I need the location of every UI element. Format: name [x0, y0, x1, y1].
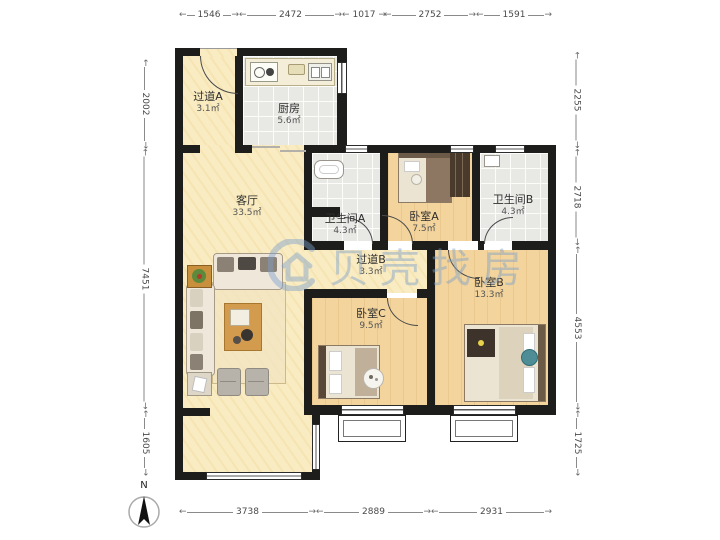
bed-b-cabinet — [467, 329, 495, 357]
wall — [175, 408, 210, 416]
room-label-kitchen: 厨房5.6㎡ — [277, 102, 300, 127]
bathtub-icon — [314, 160, 344, 179]
dimension-top-3: ←1017→ — [342, 8, 384, 22]
side-table-plant — [187, 265, 212, 288]
window-bed-a — [450, 145, 474, 153]
room-label-bed-c: 卧室C9.5㎡ — [356, 307, 386, 332]
bed-c-rug — [363, 368, 384, 389]
dimension-left-1: ←2002→ — [138, 59, 152, 149]
sliding-door-kitchen — [252, 146, 280, 148]
dimension-right-1: ←2255→ — [570, 52, 584, 149]
dimension-top-2: ←2472→ — [239, 8, 342, 22]
window-bath-a — [345, 145, 368, 153]
dimension-bottom-2: ←2889→ — [316, 505, 431, 519]
window-kitchen — [337, 62, 347, 94]
room-label-bed-b: 卧室B13.3㎡ — [474, 276, 504, 301]
wall — [472, 145, 480, 241]
room-label-hallway-a: 过道A3.1㎡ — [193, 90, 223, 115]
wall — [372, 241, 382, 250]
stool-right — [245, 368, 269, 396]
bed-b-deco — [521, 349, 538, 366]
wall — [304, 293, 312, 415]
stove-icon — [250, 62, 278, 82]
wardrobe-bed-a — [450, 151, 470, 197]
compass-north-label: N — [122, 480, 166, 491]
bay-window-bed-c — [338, 415, 406, 442]
wall — [548, 145, 556, 415]
dimension-top-1: ←1546→ — [179, 8, 239, 22]
wall — [304, 289, 387, 298]
room-label-bath-b: 卫生间B4.3㎡ — [493, 193, 534, 218]
sofa-vertical — [186, 284, 215, 376]
dimension-top-4: ←2752→ — [384, 8, 476, 22]
room-label-bed-a: 卧室A7.5㎡ — [409, 210, 439, 235]
dimension-left-3: ←1605→ — [138, 410, 152, 476]
sliding-door-kitchen — [280, 150, 306, 152]
wall — [427, 241, 435, 405]
dimension-right-4: ←1725→ — [570, 410, 584, 476]
dimension-right-3: ←4553→ — [570, 246, 584, 410]
room-label-bath-a: 卫生间A4.3㎡ — [325, 212, 366, 237]
dimension-top-5: ←1591→ — [476, 8, 552, 22]
stool-left — [217, 368, 241, 396]
bay-window-bed-b — [450, 415, 518, 442]
room-label-hallway-b: 过道B3.3㎡ — [356, 253, 386, 278]
sofa-horizontal — [213, 253, 283, 290]
dimension-left-2: ←7451→ — [138, 149, 152, 410]
wall — [512, 241, 548, 250]
wall — [304, 241, 344, 250]
window-bed-c — [341, 405, 404, 415]
kitchen-counter — [245, 58, 335, 86]
floorplan-canvas: 过道A3.1㎡ 厨房5.6㎡ 客厅33.5㎡ 卫生间A4.3㎡ 卧室A7.5㎡ … — [0, 0, 720, 540]
dimension-bottom-3: ←2931→ — [431, 505, 552, 519]
wall — [235, 145, 252, 153]
compass: N — [122, 480, 166, 534]
window-bed-b — [453, 405, 516, 415]
window-living-east — [312, 424, 320, 470]
window-living-south — [206, 472, 302, 480]
window-bath-b — [495, 145, 525, 153]
cutting-board-icon — [288, 64, 305, 75]
wall — [175, 145, 200, 153]
bed-a — [398, 151, 452, 203]
coffee-table — [224, 303, 262, 351]
dimension-bottom-1: ←3738→ — [179, 505, 316, 519]
dimension-right-2: ←2718→ — [570, 149, 584, 246]
wall — [237, 48, 347, 56]
bath-b-sink-icon — [484, 155, 500, 167]
wall — [304, 145, 312, 250]
sink-icon — [308, 63, 332, 81]
compass-icon — [126, 492, 162, 530]
side-table-book — [187, 372, 212, 396]
room-label-living: 客厅33.5㎡ — [232, 194, 261, 219]
